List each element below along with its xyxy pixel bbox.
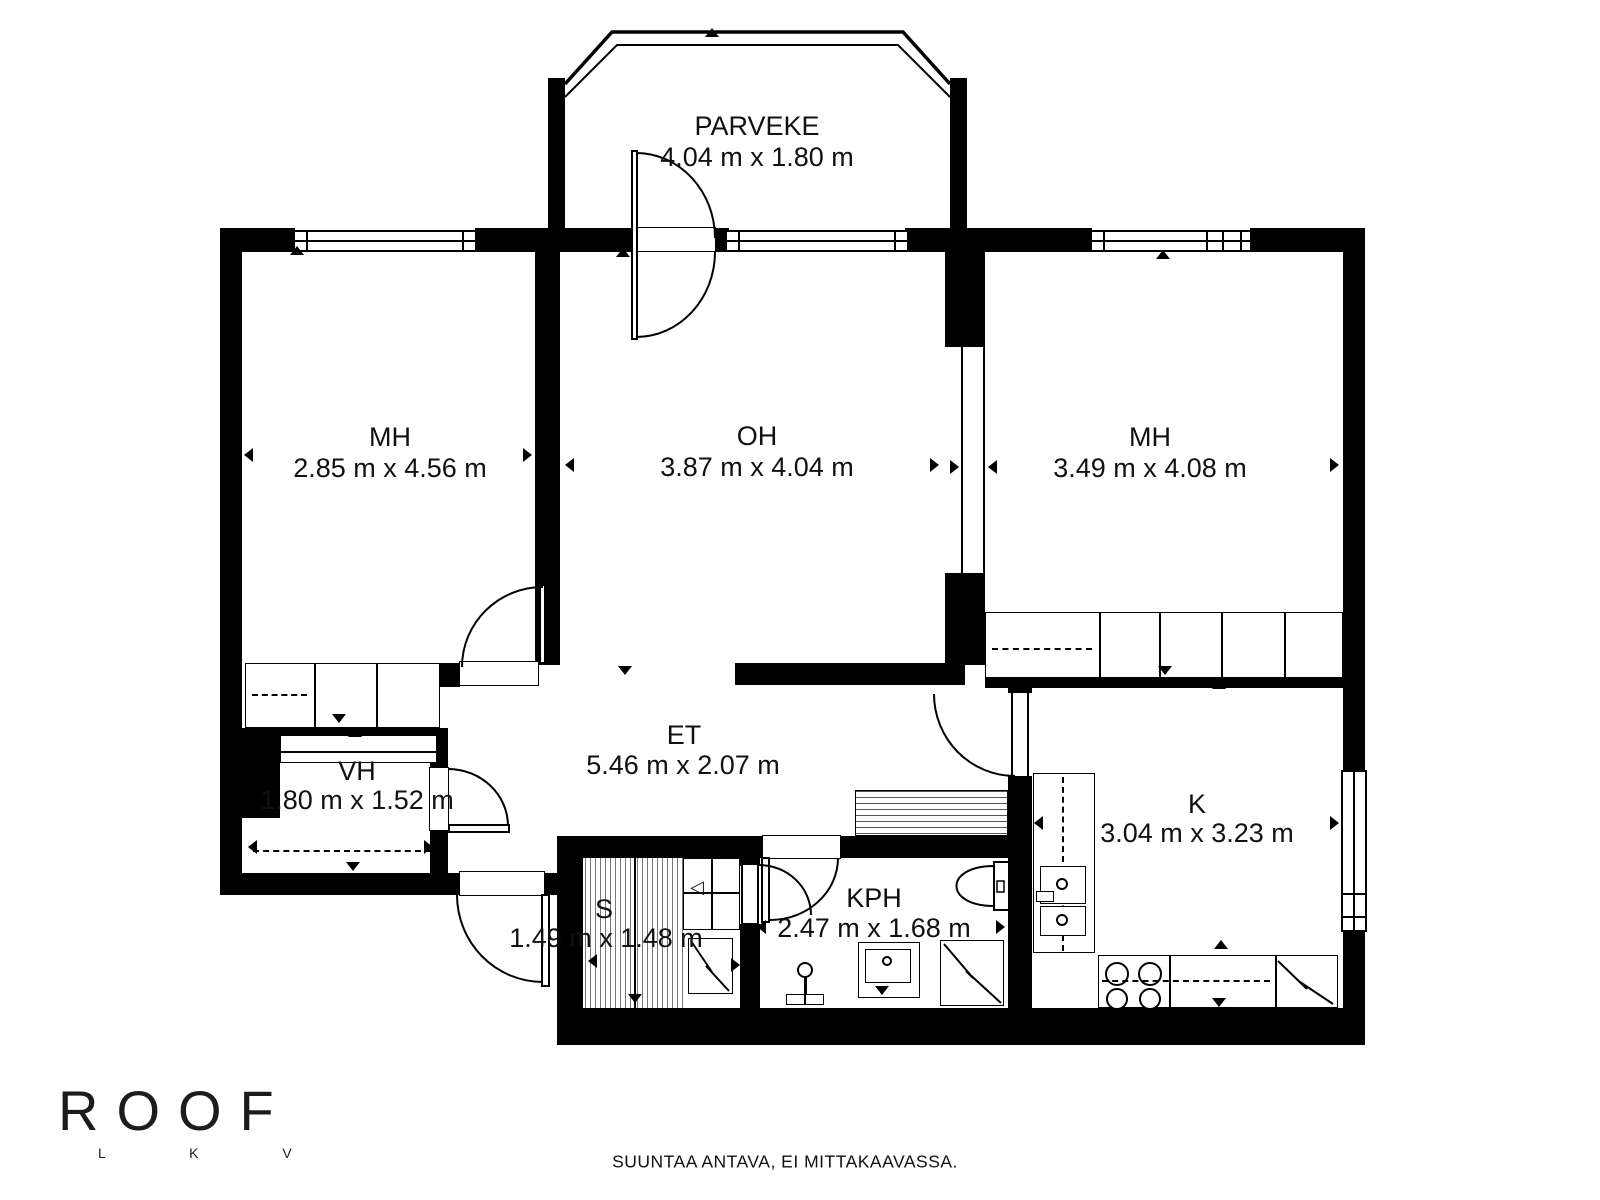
balcony-wall-stub: [548, 78, 565, 230]
kitchen-door-swing: [933, 694, 1015, 777]
room-label-mh-right: MH: [1129, 423, 1171, 453]
wall-segment: [1343, 228, 1365, 773]
window-line: [894, 232, 896, 250]
faucet-base: [786, 994, 824, 1005]
direction-arrow: [565, 458, 574, 472]
direction-arrow: [705, 28, 719, 37]
direction-arrow: [1214, 940, 1228, 949]
direction-arrow: [875, 986, 889, 995]
wall-segment: [740, 924, 760, 1010]
wall-segment: [985, 678, 1343, 688]
direction-arrow: [248, 840, 257, 854]
window-line: [306, 232, 308, 250]
direction-arrow: [1212, 998, 1226, 1007]
wardrobe-rail: [992, 648, 1092, 650]
opening-edge: [983, 347, 985, 573]
kitchen-tap: [1036, 891, 1054, 902]
faucet-base-line: [804, 995, 806, 1004]
kph-door-threshold: [762, 835, 841, 859]
wardrobe-divider: [1221, 613, 1223, 677]
stove-burner: [1105, 962, 1129, 986]
wall-segment: [905, 228, 967, 252]
logo-brand-text: ROOF: [58, 1078, 332, 1143]
wall-segment: [557, 836, 763, 858]
room-dims-kitchen: 3.04 m x 3.23 m: [1100, 819, 1294, 849]
direction-arrow: [616, 248, 630, 257]
direction-arrow: [626, 844, 640, 853]
wardrobe-divider: [376, 664, 378, 727]
wardrobe-divider: [1284, 613, 1286, 677]
room-label-mh-left: MH: [369, 423, 411, 453]
balcony-door-swing: [636, 252, 716, 338]
balcony-wall-stub: [950, 78, 967, 230]
balcony-railing-inner: [565, 45, 950, 97]
direction-arrow: [731, 958, 740, 972]
room-dims-parveke: 4.04 m x 1.80 m: [660, 143, 854, 173]
room-label-kitchen: K: [1188, 790, 1206, 820]
direction-arrow: [424, 840, 433, 854]
window-line: [1343, 916, 1365, 918]
shelf-line: [281, 751, 436, 753]
window: [1090, 230, 1252, 252]
direction-arrow: [1034, 816, 1043, 830]
bedroom-door-swing: [461, 586, 543, 667]
hall-closet: [855, 790, 1008, 836]
floorplan-canvas: ◁: [0, 0, 1600, 1200]
direction-arrow: [348, 728, 362, 737]
roof-lkv-logo: ROOF L K V: [58, 1078, 332, 1161]
washing-machine: [940, 940, 1004, 1006]
direction-arrow: [628, 994, 642, 1003]
vh-door-leaf: [448, 824, 510, 833]
direction-arrow: [1330, 816, 1339, 830]
wall-segment: [945, 573, 985, 665]
bathroom-sink: [858, 942, 920, 998]
direction-arrow: [858, 840, 872, 849]
direction-arrow: [588, 954, 597, 968]
faucet-icon: [797, 962, 813, 978]
direction-arrow: [332, 714, 346, 723]
direction-arrow: [988, 460, 997, 474]
front-door-threshold: [459, 871, 545, 896]
sink-drain: [882, 956, 892, 966]
vh-door-swing: [448, 768, 509, 826]
direction-arrow: [1156, 250, 1170, 259]
room-label-oh: OH: [737, 422, 778, 452]
direction-arrow: [618, 666, 632, 675]
wall-segment: [557, 1008, 1365, 1045]
balcony-railing-outer: [565, 32, 950, 84]
direction-arrow: [244, 448, 253, 462]
window-line: [738, 232, 740, 250]
room-dims-sauna: 1.49 m x 1.48 m: [509, 924, 703, 954]
room-label-et: ET: [667, 721, 702, 751]
counter-divider: [1275, 956, 1277, 1007]
room-dims-oh: 3.87 m x 4.04 m: [660, 453, 854, 483]
direction-arrow: [996, 920, 1005, 934]
bench-line: [711, 859, 713, 929]
logo-sub-text: L K V: [98, 1145, 332, 1161]
wardrobe-divider: [314, 664, 316, 727]
wall-segment: [945, 252, 985, 347]
toilet-tank: [994, 862, 1009, 910]
opening-edge: [961, 347, 963, 573]
room-label-parveke: PARVEKE: [694, 112, 819, 142]
room-dims-vh: 1.80 m x 1.52 m: [260, 786, 454, 816]
room-dims-kph: 2.47 m x 1.68 m: [777, 914, 971, 944]
window-line: [1353, 772, 1355, 930]
direction-arrow: [757, 920, 766, 934]
direction-arrow: [290, 246, 304, 255]
room-label-sauna: S: [595, 895, 613, 925]
wall-segment: [965, 228, 1092, 252]
sink-basin: [865, 949, 911, 983]
vh-rail: [253, 850, 431, 852]
sink-drain: [1056, 914, 1068, 926]
window-line: [1092, 240, 1250, 242]
direction-arrow: [523, 448, 532, 462]
window-line: [462, 232, 464, 250]
disclaimer-text: SUUNTAA ANTAVA, EI MITTAKAAVASSA.: [612, 1152, 958, 1173]
window-line: [1343, 893, 1365, 895]
window-line: [1222, 232, 1224, 250]
wall-segment: [1008, 776, 1032, 1010]
room-label-vh: VH: [338, 757, 376, 787]
direction-arrow: [1330, 458, 1339, 472]
stove-burner: [1139, 988, 1161, 1010]
wall-segment: [735, 663, 965, 685]
window-kitchen: [1341, 770, 1367, 932]
toilet-bowl: [957, 866, 995, 906]
wall-segment: [220, 873, 460, 895]
direction-arrow: [930, 458, 939, 472]
toilet-button: [997, 881, 1004, 892]
faucet-stem: [804, 977, 807, 995]
stove-burner: [1138, 962, 1162, 986]
direction-arrow: [1212, 680, 1226, 689]
stove-burner: [1106, 988, 1128, 1010]
window-line: [1103, 232, 1105, 250]
sink-drain: [1056, 878, 1068, 890]
window-line: [1206, 232, 1208, 250]
wall-segment: [220, 228, 242, 895]
window-line: [727, 240, 907, 242]
window: [725, 230, 909, 252]
wall-segment: [440, 663, 460, 687]
direction-arrow: [1158, 666, 1172, 675]
wardrobe-rail: [252, 694, 307, 696]
window-line: [295, 240, 475, 242]
room-dims-mh-right: 3.49 m x 4.08 m: [1053, 454, 1247, 484]
room-dims-mh-left: 2.85 m x 4.56 m: [293, 454, 487, 484]
room-label-kph: KPH: [846, 884, 902, 914]
window-line: [1240, 232, 1242, 250]
window: [293, 230, 477, 252]
room-dims-et: 5.46 m x 2.07 m: [586, 751, 780, 781]
bench-arrow-icon: ◁: [690, 878, 704, 898]
sauna-door-leaf: [741, 863, 759, 925]
wardrobe-divider: [1099, 613, 1101, 677]
direction-arrow: [346, 862, 360, 871]
direction-arrow: [950, 460, 959, 474]
counter-dash: [1102, 980, 1270, 982]
